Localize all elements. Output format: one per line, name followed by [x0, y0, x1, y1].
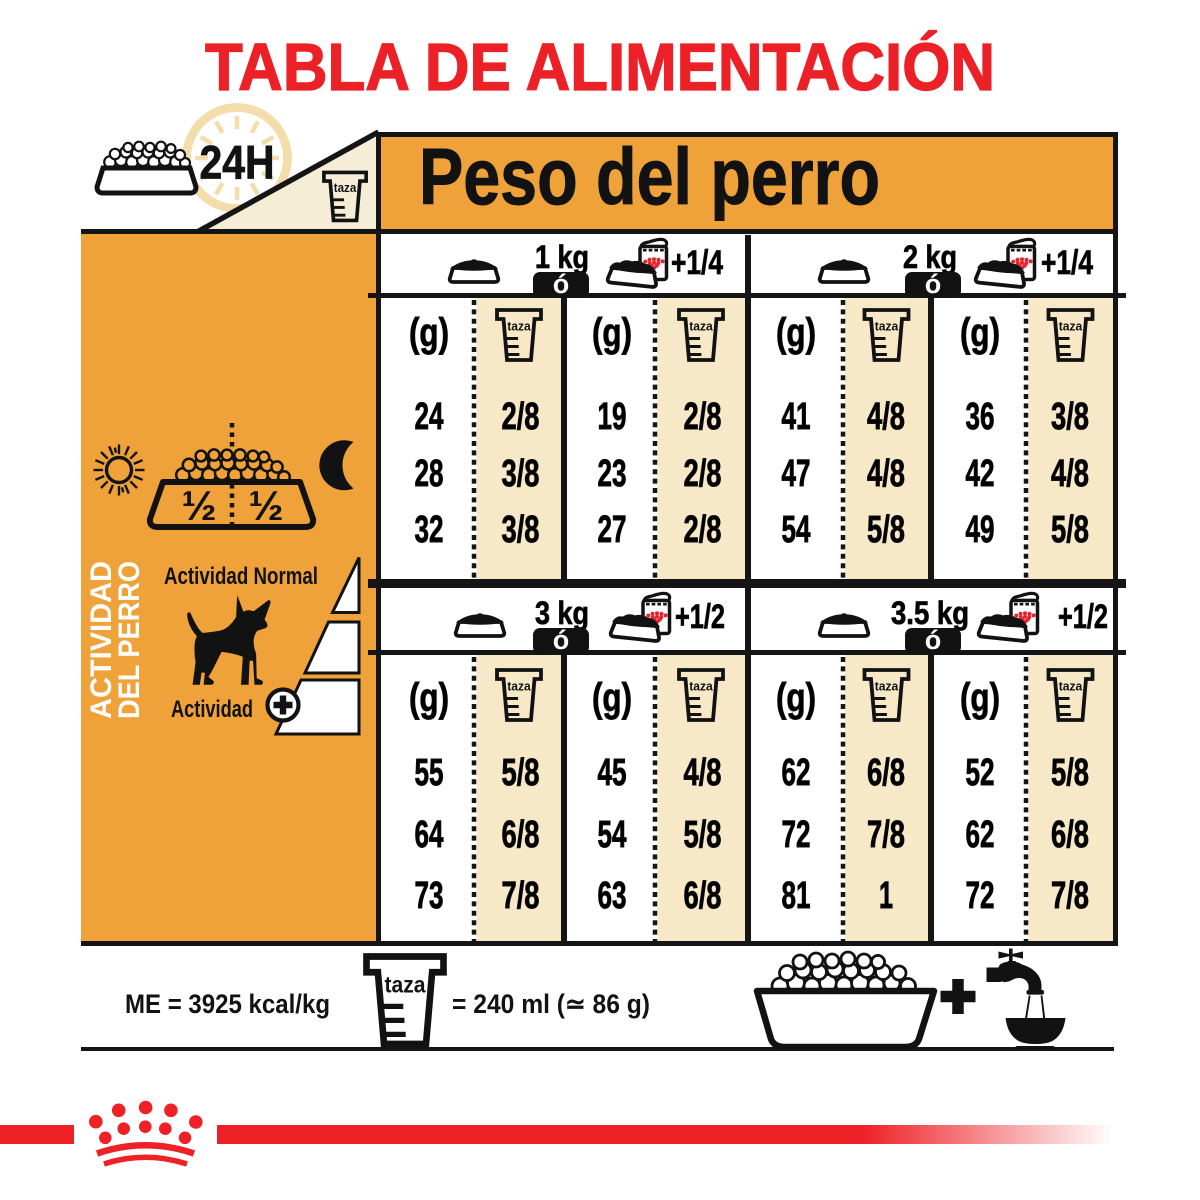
- svg-text:72: 72: [782, 814, 811, 856]
- svg-text:45: 45: [598, 752, 627, 794]
- svg-text:+1/4: +1/4: [1041, 244, 1093, 282]
- svg-text:54: 54: [782, 509, 811, 551]
- svg-text:62: 62: [782, 752, 811, 794]
- svg-text:62: 62: [966, 814, 995, 856]
- svg-text:(g): (g): [960, 676, 1000, 720]
- svg-text:19: 19: [598, 396, 627, 438]
- svg-text:ó: ó: [925, 269, 942, 299]
- svg-text:5/8: 5/8: [1051, 509, 1089, 551]
- svg-text:52: 52: [966, 752, 995, 794]
- svg-text:½: ½: [248, 482, 283, 529]
- svg-text:5/8: 5/8: [502, 752, 540, 794]
- svg-text:42: 42: [966, 453, 995, 495]
- svg-text:5/8: 5/8: [1051, 752, 1089, 794]
- svg-text:73: 73: [415, 875, 444, 917]
- svg-text:2/8: 2/8: [502, 396, 540, 438]
- svg-text:7/8: 7/8: [502, 875, 540, 917]
- svg-text:47: 47: [782, 453, 811, 495]
- svg-text:7/8: 7/8: [1051, 875, 1089, 917]
- svg-text:ó: ó: [553, 269, 570, 299]
- svg-text:7/8: 7/8: [867, 814, 905, 856]
- svg-text:55: 55: [415, 752, 444, 794]
- svg-text:81: 81: [782, 875, 811, 917]
- svg-text:4/8: 4/8: [1051, 453, 1089, 495]
- svg-text:4/8: 4/8: [867, 453, 905, 495]
- svg-text:2/8: 2/8: [684, 453, 722, 495]
- svg-text:+1/2: +1/2: [1058, 598, 1108, 636]
- svg-text:36: 36: [966, 396, 995, 438]
- svg-text:+1/2: +1/2: [675, 598, 725, 636]
- svg-text:27: 27: [598, 509, 627, 551]
- svg-text:DEL PERRO: DEL PERRO: [113, 561, 146, 719]
- svg-text:+1/4: +1/4: [671, 244, 723, 282]
- svg-text:ó: ó: [553, 625, 570, 655]
- svg-text:Peso del perro: Peso del perro: [419, 132, 880, 221]
- svg-text:TABLA DE ALIMENTACIÓN: TABLA DE ALIMENTACIÓN: [205, 30, 995, 105]
- svg-text:3/8: 3/8: [502, 509, 540, 551]
- svg-text:1: 1: [879, 875, 893, 917]
- svg-text:Actividad Normal: Actividad Normal: [164, 563, 318, 590]
- svg-text:6/8: 6/8: [502, 814, 540, 856]
- svg-text:24: 24: [415, 396, 444, 438]
- svg-text:63: 63: [598, 875, 627, 917]
- svg-text:(g): (g): [409, 676, 449, 720]
- svg-text:(g): (g): [592, 311, 632, 355]
- svg-text:½: ½: [181, 482, 216, 529]
- svg-text:24H: 24H: [200, 137, 275, 190]
- svg-text:= 240 ml (≃ 86 g): = 240 ml (≃ 86 g): [452, 989, 650, 1019]
- svg-text:5/8: 5/8: [867, 509, 905, 551]
- svg-text:6/8: 6/8: [1051, 814, 1089, 856]
- svg-text:32: 32: [415, 509, 444, 551]
- svg-text:4/8: 4/8: [867, 396, 905, 438]
- svg-text:6/8: 6/8: [684, 875, 722, 917]
- svg-text:3/8: 3/8: [502, 453, 540, 495]
- svg-text:23: 23: [598, 453, 627, 495]
- svg-text:72: 72: [966, 875, 995, 917]
- svg-text:(g): (g): [592, 676, 632, 720]
- svg-text:54: 54: [598, 814, 627, 856]
- svg-text:3/8: 3/8: [1051, 396, 1089, 438]
- svg-text:(g): (g): [776, 311, 816, 355]
- svg-text:6/8: 6/8: [867, 752, 905, 794]
- svg-text:28: 28: [415, 453, 444, 495]
- svg-text:2/8: 2/8: [684, 509, 722, 551]
- svg-text:(g): (g): [776, 676, 816, 720]
- svg-text:(g): (g): [409, 311, 449, 355]
- svg-text:41: 41: [782, 396, 811, 438]
- svg-text:49: 49: [966, 509, 995, 551]
- svg-text:5/8: 5/8: [684, 814, 722, 856]
- svg-text:4/8: 4/8: [684, 752, 722, 794]
- svg-text:(g): (g): [960, 311, 1000, 355]
- svg-text:ó: ó: [925, 625, 942, 655]
- svg-text:64: 64: [415, 814, 444, 856]
- svg-text:2/8: 2/8: [684, 396, 722, 438]
- svg-text:Actividad: Actividad: [171, 696, 253, 723]
- svg-text:ME = 3925 kcal/kg: ME = 3925 kcal/kg: [125, 989, 330, 1019]
